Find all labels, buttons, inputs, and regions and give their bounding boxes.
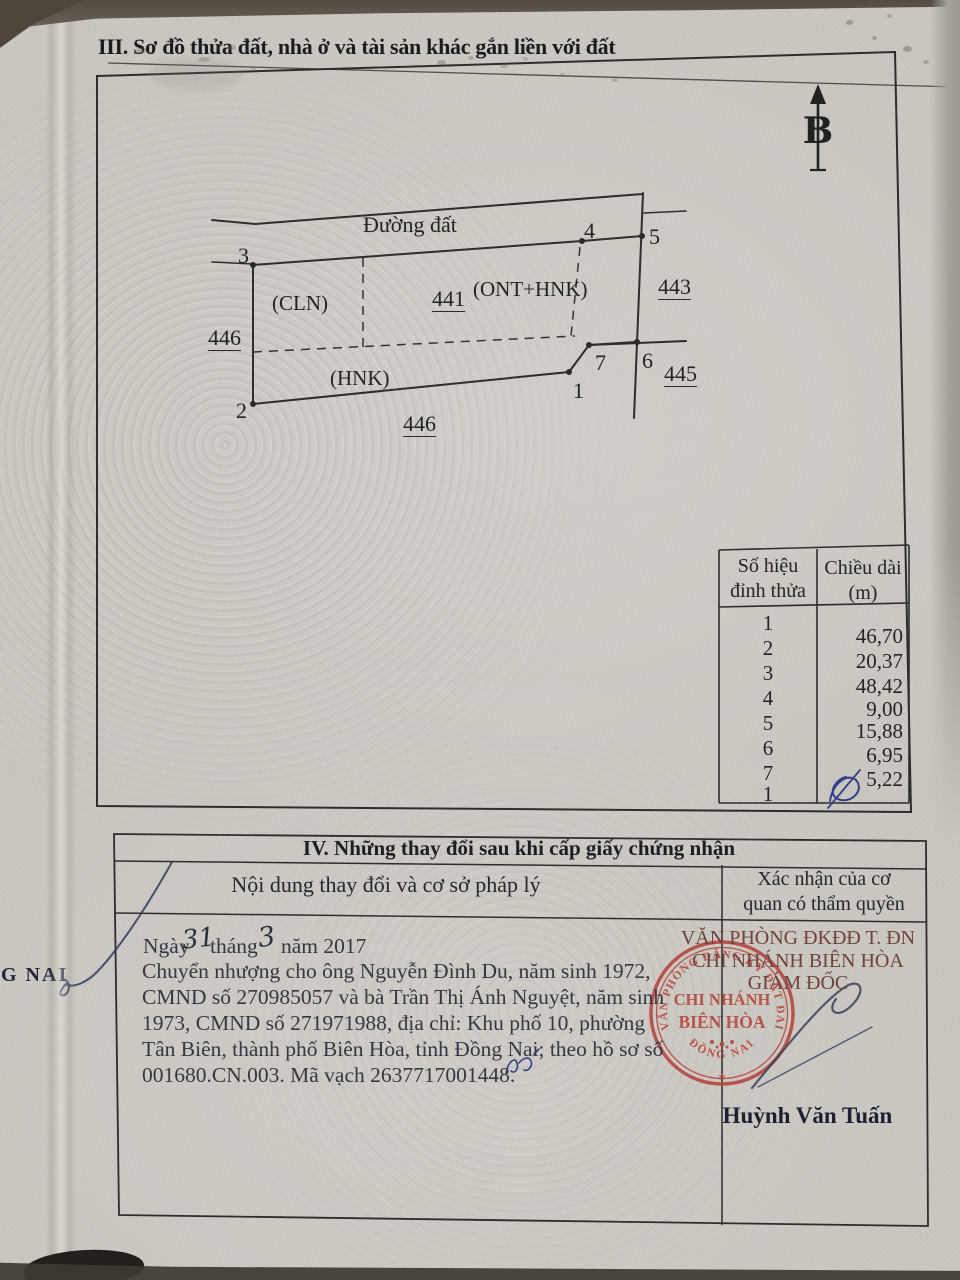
certificate-page: III. Sơ đồ thửa đất, nhà ở và tài sản kh… [0, 0, 960, 1280]
photo-right-edge [930, 0, 960, 840]
authority-office-line1: VĂN PHÒNG ĐKĐĐ T. ĐN [648, 927, 948, 950]
zone-label-hnk: (HNK) [330, 366, 389, 390]
edge-length-value: 48,42 [816, 674, 903, 698]
edge-length-value: 6,95 [816, 743, 903, 767]
stain-speck [923, 60, 929, 64]
stain-speck [468, 56, 474, 60]
stain-speck [437, 60, 446, 65]
stain-speck [887, 14, 892, 18]
section4-col2-header-line1: Xác nhận của cơ [726, 868, 922, 891]
neighbor-parcel-south: 446 [403, 411, 436, 437]
parcel-number: 441 [432, 286, 465, 312]
entry-line: Tân Biên, thành phố Biên Hòa, tỉnh Đồng … [142, 1037, 663, 1062]
vertex-label-5: 5 [649, 224, 660, 249]
section4-title: IV. Những thay đổi sau khi cấp giấy chứn… [116, 836, 922, 860]
vertex-table-header-col2-line1: Chiều dài [818, 557, 908, 580]
signer-name: Huỳnh Văn Tuấn [700, 1103, 915, 1129]
neighbor-parcel-west: 446 [208, 325, 241, 351]
vertex-label-3: 3 [238, 243, 249, 268]
vertex-table-header-col1-line2: đỉnh thửa [720, 580, 816, 603]
neighbor-parcel-southeast: 445 [664, 361, 697, 387]
entry-line: Chuyển nhượng cho ông Nguyễn Đình Du, nă… [142, 959, 651, 984]
zone-label-ont-hnk: (ONT+HNK) [473, 277, 588, 301]
stain-speck [228, 45, 236, 50]
vertex-label-2: 2 [236, 398, 247, 423]
vertex-id-row: 1 [720, 782, 816, 806]
vertex-id-row: 4 [720, 686, 816, 710]
entry-line: 1973, CMND số 271971988, địa chỉ: Khu ph… [142, 1011, 645, 1036]
north-symbol-letter: B [803, 110, 833, 152]
stain-speck [872, 36, 877, 40]
authority-office-line3: GIÁM ĐỐC [648, 972, 948, 995]
edge-length-value: 20,37 [816, 649, 903, 673]
date-suffix: năm 2017 [281, 934, 366, 959]
zone-label-cln: (CLN) [272, 291, 328, 315]
edge-length-value: 5,22 [816, 767, 903, 791]
entry-line: CMND số 270985057 và bà Trần Thị Ánh Ngu… [142, 985, 664, 1010]
parcel-vertex-dots [250, 233, 645, 407]
vertex-id-row: 5 [720, 711, 816, 735]
edge-length-value: 9,00 [816, 697, 903, 721]
stamp-center-line2: BIÊN HÒA [678, 1012, 765, 1032]
edge-length-value: 15,88 [816, 719, 903, 743]
stain-speck [612, 78, 618, 82]
entry-line: 001680.CN.003. Mã vạch 2637717001448. [142, 1063, 515, 1088]
vertex-id-row: 2 [720, 636, 816, 660]
page-fold-crease [46, 0, 76, 1280]
vertex-id-row: 3 [720, 661, 816, 685]
authority-office-line2: CHI NHÁNH BIÊN HÒA [648, 950, 948, 973]
stain-speck [500, 64, 508, 68]
vertex-table-header-col1-line1: Số hiệu [720, 555, 816, 578]
stain-speck [846, 20, 853, 25]
stain-speck [523, 57, 528, 61]
stain-speck [165, 40, 172, 44]
vertex-id-row: 6 [720, 736, 816, 760]
section4-col2-header-line2: quan có thẩm quyền [726, 893, 922, 916]
section4-col1-header: Nội dung thay đổi và cơ sở pháp lý [160, 872, 612, 897]
stain-speck [560, 73, 565, 77]
stain-speck [198, 57, 210, 62]
edge-length-value: 46,70 [816, 624, 903, 648]
vertex-table-header-col2-line2: (m) [818, 582, 908, 605]
vertex-label-4: 4 [584, 218, 595, 243]
stain [150, 58, 245, 90]
vertex-label-6: 6 [642, 348, 653, 373]
stamp-star: ★ [718, 1072, 727, 1083]
stain-speck [136, 48, 146, 53]
date-middle: tháng [210, 934, 258, 959]
stain-speck [903, 46, 912, 52]
stain-speck [250, 66, 256, 70]
vertex-label-1: 1 [573, 378, 584, 403]
neighbor-parcel-east: 443 [658, 274, 691, 300]
vertex-id-row: 1 [720, 611, 816, 635]
road-label: Đường đất [363, 212, 457, 237]
vertex-label-7: 7 [595, 350, 606, 375]
